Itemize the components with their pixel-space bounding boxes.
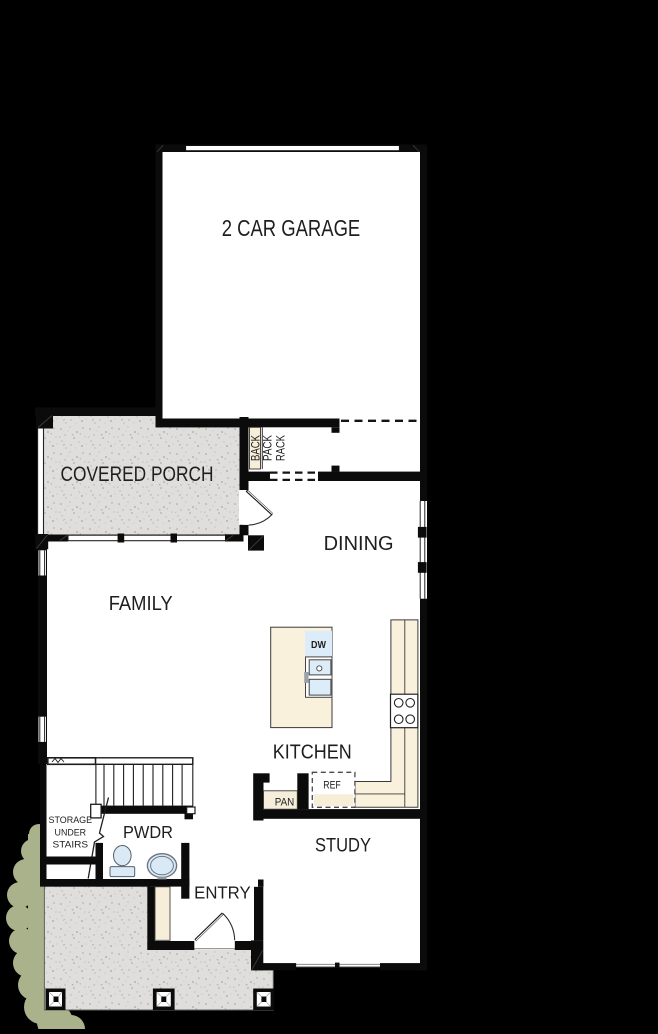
svg-text:PACK: PACK [263, 435, 275, 461]
svg-text:PWDR: PWDR [123, 822, 173, 842]
svg-text:COVERED PORCH: COVERED PORCH [61, 463, 214, 486]
svg-text:REF: REF [323, 779, 341, 791]
svg-text:UNDER: UNDER [55, 827, 87, 838]
svg-text:PAN: PAN [275, 797, 295, 809]
svg-text:STAIRS: STAIRS [53, 840, 89, 851]
svg-text:DINING: DINING [324, 533, 394, 555]
svg-text:2 CAR GARAGE: 2 CAR GARAGE [222, 215, 361, 241]
svg-text:BACK: BACK [251, 435, 263, 461]
svg-text:KITCHEN: KITCHEN [273, 742, 352, 764]
svg-text:FAMILY: FAMILY [109, 592, 173, 615]
svg-text:DW: DW [311, 639, 326, 651]
svg-text:ENTRY: ENTRY [194, 882, 251, 902]
svg-text:STUDY: STUDY [315, 836, 371, 857]
svg-text:RACK: RACK [276, 435, 288, 461]
svg-text:STORAGE: STORAGE [49, 815, 93, 826]
